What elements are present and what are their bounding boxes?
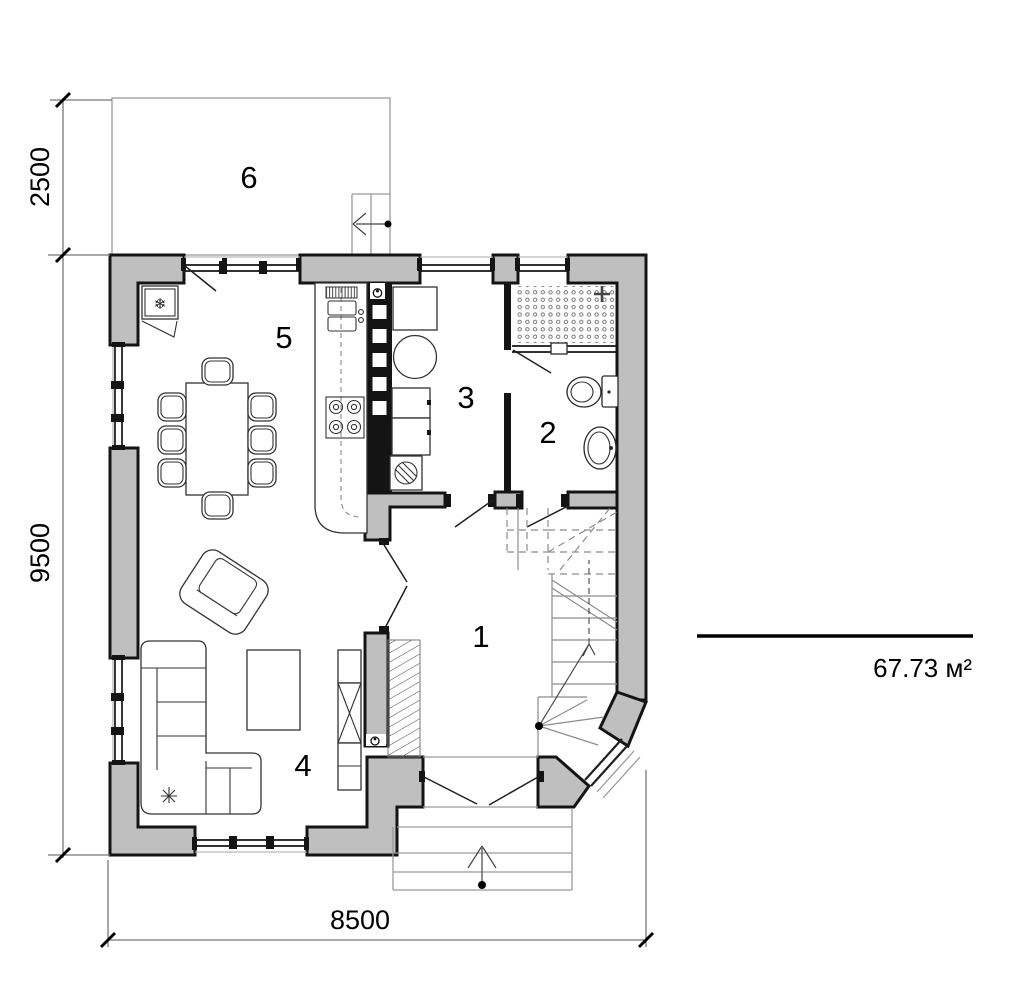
door-porch-french-leaves [424, 777, 538, 805]
armchair [175, 545, 273, 638]
shower-screen [512, 343, 616, 354]
chimney-block [367, 283, 392, 493]
window-top-terrace [184, 261, 300, 274]
door-kitchen-hall-leaf [455, 500, 493, 527]
sofa [141, 641, 261, 814]
terrace-steps [352, 194, 392, 255]
wall-left-middle [110, 448, 138, 658]
kitchen-counter-a [392, 388, 430, 418]
toilet [567, 376, 618, 407]
vent-lower [366, 734, 386, 746]
door-terrace-leaf [185, 266, 216, 291]
partition-kitchen-bath [504, 283, 511, 492]
window-top-bath [518, 265, 568, 271]
window-top-kitchen [420, 265, 493, 271]
dimension-left: 2500 9500 [25, 93, 112, 862]
room-label-2: 2 [539, 415, 556, 450]
fridge: ❄ [142, 286, 178, 337]
wall-partition-living-hall [365, 633, 388, 746]
coffee-table [247, 650, 300, 730]
room-label-4: 4 [294, 748, 311, 783]
entry-arrow-icon [468, 846, 496, 886]
door-bath-leaf [513, 350, 551, 373]
kitchen-cabinet [393, 287, 437, 330]
wall-bath-bottom [568, 492, 617, 508]
kitchen-right-side [390, 287, 437, 490]
kitchen-counter-left [315, 283, 367, 533]
room-label-3: 3 [457, 380, 474, 415]
dimension-house-depth: 9500 [25, 523, 55, 583]
floor-plan-page: ❄ [0, 0, 1024, 991]
wall-kitchen-tee [365, 493, 445, 540]
room-label-5: 5 [275, 320, 292, 355]
wall-corner-angled-block [600, 692, 646, 746]
tv-unit [338, 650, 361, 790]
door-main-entrance [585, 739, 628, 786]
window-bottom [195, 836, 307, 849]
counter-vent-grille [326, 287, 357, 298]
fridge-snowflake-icon: ❄ [154, 296, 167, 313]
dimension-terrace-depth: 2500 [25, 147, 55, 207]
wall-bottom-block [307, 757, 423, 855]
bathroom-fixtures [512, 286, 618, 469]
area-total-label: 67.73 м² [873, 653, 972, 683]
room-label-6: 6 [240, 160, 257, 195]
floor-plan: ❄ [0, 0, 1024, 991]
stair-direction-arrow-icon [539, 644, 595, 726]
bath-sink [584, 427, 616, 469]
dimension-house-width: 8500 [330, 905, 390, 935]
dining-table [186, 383, 248, 495]
door-hall-double-leaves [381, 540, 407, 630]
washing-machine [390, 456, 422, 490]
kitchen-round-table [394, 336, 437, 379]
kitchen-counter-b [392, 418, 430, 455]
wall-entry-pier [538, 757, 589, 807]
room-label-1: 1 [472, 619, 489, 654]
wall-top-middle [300, 255, 420, 283]
wall-top-pier [493, 255, 518, 283]
dining-set [158, 358, 276, 519]
hall-wardrobe [388, 640, 420, 757]
staircase [507, 508, 617, 757]
area-note: 67.73 м² [697, 636, 973, 683]
